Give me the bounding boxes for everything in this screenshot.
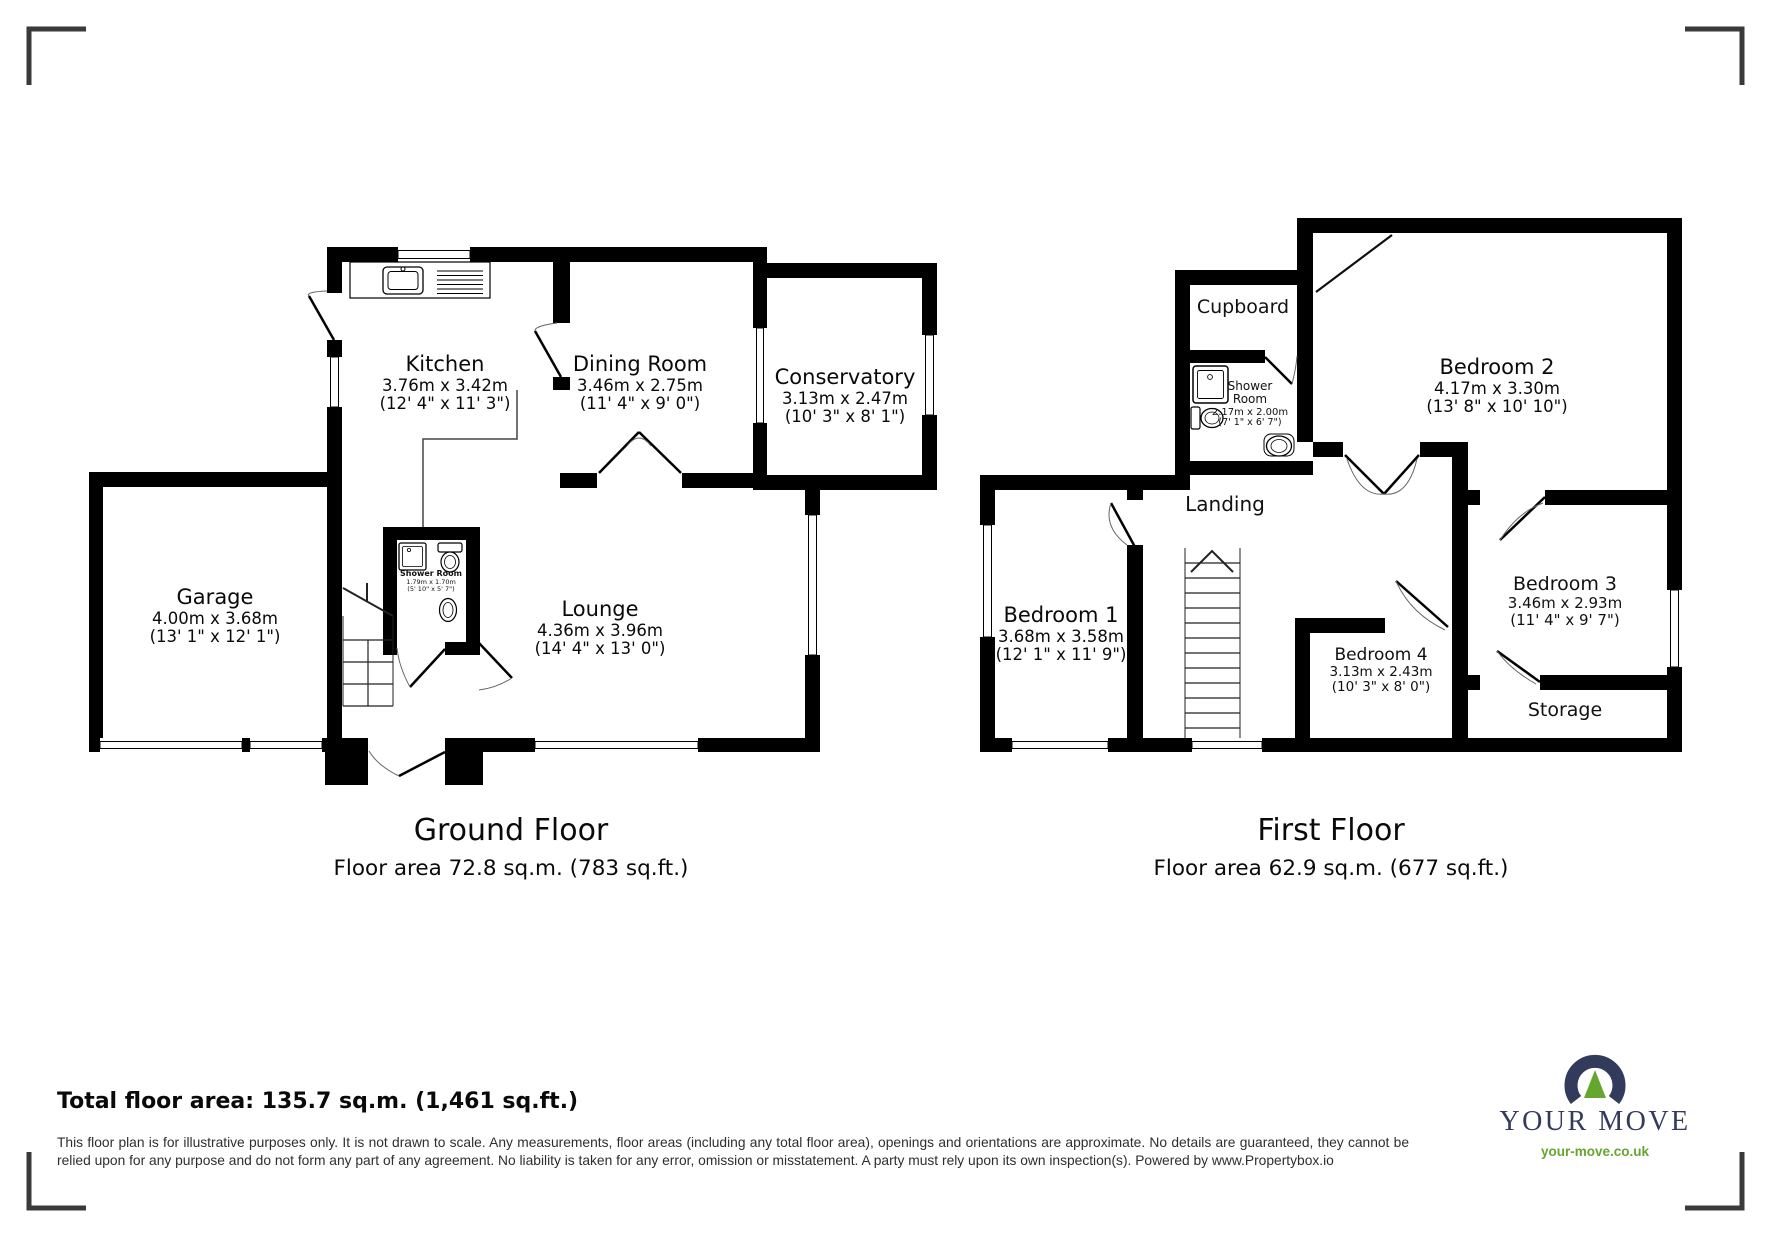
room-label-shower-first: Shower Room 2.17m x 2.00m (7' 1" x 6' 7"…: [1212, 380, 1288, 429]
ground-floor-title: Ground Floor: [414, 813, 609, 848]
room-name: Bedroom 1: [996, 604, 1127, 628]
corner-mark-top-right: [1685, 29, 1742, 85]
room-label-landing: Landing: [1185, 493, 1265, 515]
first-floor-area: Floor area 62.9 sq.m. (677 sq.ft.): [1154, 856, 1509, 881]
bedroom2-corner-line: [1316, 235, 1392, 292]
room-dim-imperial: (11' 4" x 9' 7"): [1508, 612, 1622, 629]
room-dim-imperial: (12' 4" x 11' 3"): [380, 395, 511, 413]
room-dim-imperial: (7' 1" x 6' 7"): [1212, 418, 1288, 429]
room-label-bedroom2: Bedroom 2 4.17m x 3.30m (13' 8" x 10' 10…: [1426, 356, 1567, 416]
kitchen-counter-icon: [350, 262, 490, 298]
room-name: Lounge: [535, 598, 666, 622]
corner-mark-bottom-right: [1685, 1152, 1742, 1208]
room-name: Garage: [150, 586, 281, 610]
ground-floor-area: Floor area 72.8 sq.m. (783 sq.ft.): [334, 856, 689, 881]
room-label-lounge: Lounge 4.36m x 3.96m (14' 4" x 13' 0"): [535, 598, 666, 658]
room-dim-imperial: (12' 1" x 11' 9"): [996, 646, 1127, 664]
room-label-storage: Storage: [1528, 700, 1602, 721]
room-name: Cupboard: [1197, 297, 1289, 318]
room-name: Bedroom 3: [1508, 574, 1622, 595]
room-dim-imperial: (11' 4" x 9' 0"): [573, 395, 707, 413]
room-dim-imperial: (14' 4" x 13' 0"): [535, 640, 666, 658]
room-label-garage: Garage 4.00m x 3.68m (13' 1" x 12' 1"): [150, 586, 281, 646]
room-dim-metric: 3.13m x 2.47m: [775, 390, 916, 408]
room-label-dining: Dining Room 3.46m x 2.75m (11' 4" x 9' 0…: [573, 353, 707, 413]
floorplan-page: Kitchen 3.76m x 3.42m (12' 4" x 11' 3") …: [0, 0, 1771, 1239]
disclaimer-text: This floor plan is for illustrative purp…: [57, 1134, 1409, 1169]
room-dim-imperial: (13' 8" x 10' 10"): [1426, 398, 1567, 416]
room-name-line2: Room: [1212, 393, 1288, 406]
basin-icon: [1264, 434, 1294, 456]
stairs-icon-first: [1185, 548, 1240, 738]
room-label-cupboard: Cupboard: [1197, 297, 1289, 318]
shower-tray-icon: [399, 543, 426, 570]
room-dim-imperial: (10' 3" x 8' 0"): [1330, 680, 1433, 695]
your-move-url: your-move.co.uk: [1541, 1144, 1649, 1159]
basin-icon: [440, 599, 457, 622]
room-dim-metric: 3.76m x 3.42m: [380, 377, 511, 395]
total-floor-area: Total floor area: 135.7 sq.m. (1,461 sq.…: [57, 1089, 578, 1114]
room-name: Kitchen: [380, 353, 511, 377]
room-dim-metric: 4.00m x 3.68m: [150, 610, 281, 628]
room-name: Conservatory: [775, 366, 916, 390]
room-label-bedroom3: Bedroom 3 3.46m x 2.93m (11' 4" x 9' 7"): [1508, 574, 1622, 629]
your-move-triangle-icon: [1584, 1070, 1606, 1098]
room-dim-metric: 3.46m x 2.93m: [1508, 595, 1622, 612]
room-dim-metric: 3.13m x 2.43m: [1330, 665, 1433, 680]
room-dim-imperial: (10' 3" x 8' 1"): [775, 408, 916, 426]
room-label-bedroom1: Bedroom 1 3.68m x 3.58m (12' 1" x 11' 9"…: [996, 604, 1127, 664]
room-name: Bedroom 2: [1426, 356, 1567, 380]
room-label-kitchen: Kitchen 3.76m x 3.42m (12' 4" x 11' 3"): [380, 353, 511, 413]
ground-floor-plan: [85, 210, 940, 790]
room-dim-imperial: (5' 10" x 5' 7"): [400, 586, 462, 593]
room-name: Dining Room: [573, 353, 707, 377]
room-label-bedroom4: Bedroom 4 3.13m x 2.43m (10' 3" x 8' 0"): [1330, 646, 1433, 695]
corner-mark-top-left: [29, 29, 86, 85]
room-dim-metric: 4.17m x 3.30m: [1426, 380, 1567, 398]
room-name: Bedroom 4: [1330, 646, 1433, 665]
room-dim-metric: 4.36m x 3.96m: [535, 622, 666, 640]
your-move-arch-icon: [1560, 1040, 1630, 1104]
room-label-shower-ground: Shower Room 1.79m x 1.70m (5' 10" x 5' 7…: [400, 570, 462, 593]
room-dim-metric: 3.68m x 3.58m: [996, 628, 1127, 646]
room-label-conservatory: Conservatory 3.13m x 2.47m (10' 3" x 8' …: [775, 366, 916, 426]
toilet-icon: [438, 543, 462, 572]
room-dim-imperial: (13' 1" x 12' 1"): [150, 628, 281, 646]
your-move-brand: YOUR MOVE: [1499, 1106, 1690, 1138]
room-name: Landing: [1185, 493, 1265, 515]
first-floor-title: First Floor: [1257, 813, 1404, 848]
room-dim-metric: 3.46m x 2.75m: [573, 377, 707, 395]
room-name-line1: Shower: [1212, 380, 1288, 393]
room-name: Storage: [1528, 700, 1602, 721]
